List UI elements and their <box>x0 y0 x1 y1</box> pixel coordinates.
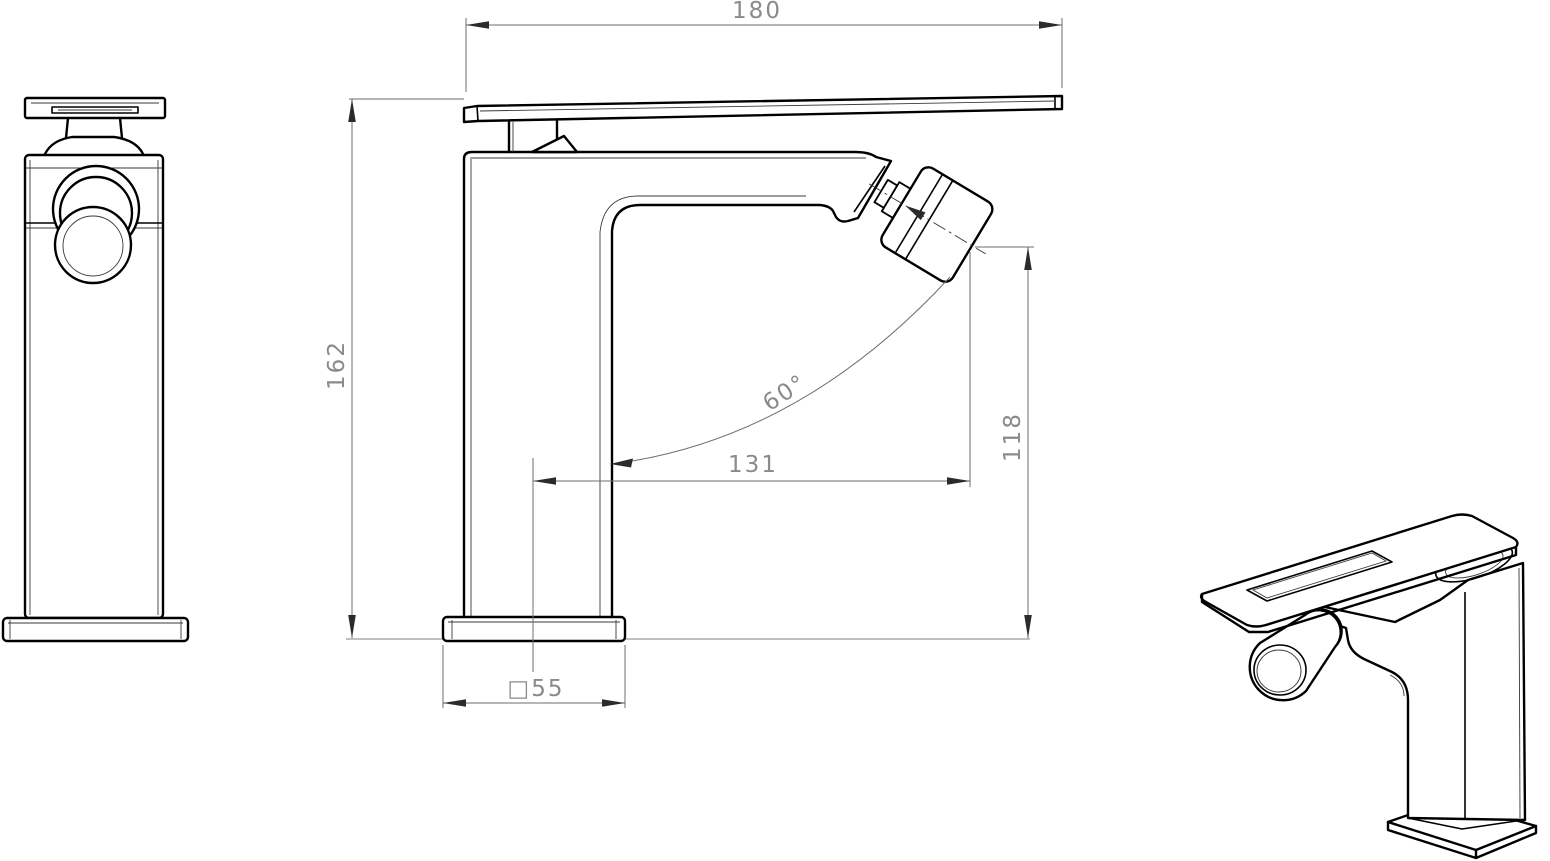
perspective-view <box>1201 515 1536 859</box>
drawing-sheet: 180 162 118 131 60 <box>0 0 1550 861</box>
dim-text-162: 162 <box>324 340 350 390</box>
dim-118: 118 <box>975 247 1034 638</box>
handle-neck <box>66 118 122 138</box>
dim-text-118: 118 <box>1000 412 1026 462</box>
handle-stem <box>509 121 577 152</box>
dim-text-131: 131 <box>728 452 778 478</box>
technical-drawing: 180 162 118 131 60 <box>0 0 1550 861</box>
cartridge-dome <box>45 137 143 154</box>
side-view <box>443 96 1062 641</box>
front-view <box>3 98 188 641</box>
base-plate-front <box>3 618 188 641</box>
handle-lever <box>464 96 1062 122</box>
base-plate-side <box>443 617 625 641</box>
dim-180: 180 <box>466 0 1062 92</box>
dim-text-55: □55 <box>508 676 565 702</box>
angle-arc <box>612 277 950 464</box>
faucet-body-side <box>464 152 891 618</box>
handle-plate <box>25 98 165 118</box>
dim-162: 162 <box>324 99 464 638</box>
dim-text-180: 180 <box>732 0 782 24</box>
stem-wedge <box>532 136 577 152</box>
dim-text-60: 60° <box>758 369 811 416</box>
spout-front-circles <box>53 166 139 283</box>
dim-60deg: 60° <box>610 277 950 468</box>
aerator-front <box>55 207 131 283</box>
